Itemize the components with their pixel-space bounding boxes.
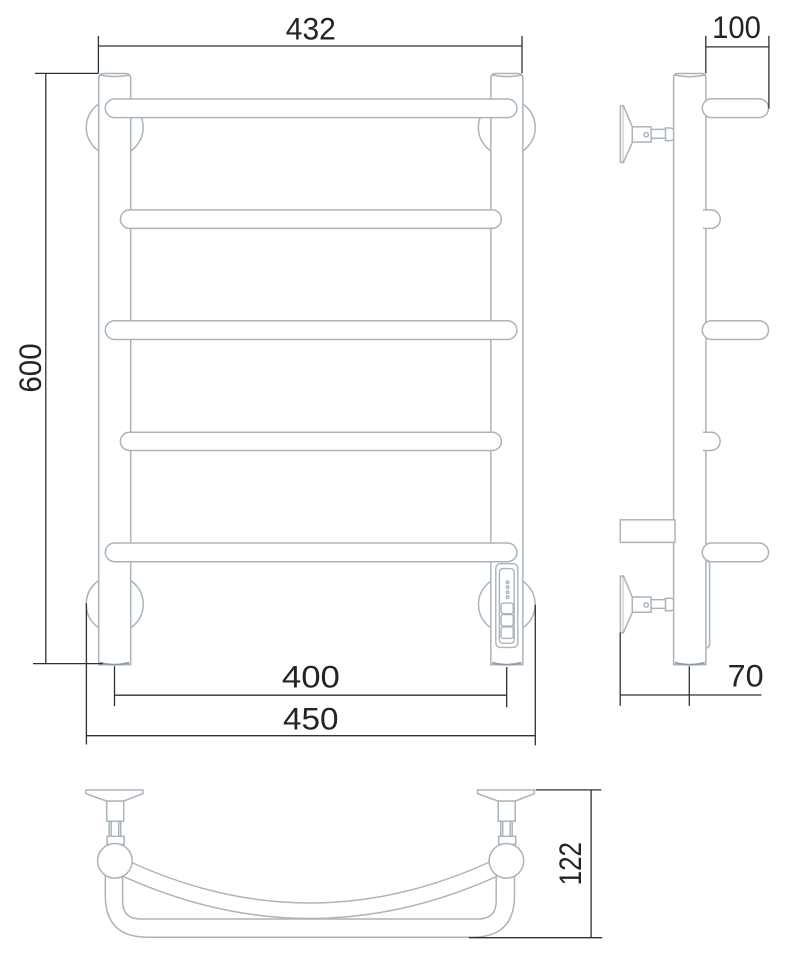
svg-text:400: 400 bbox=[282, 658, 340, 694]
svg-text:70: 70 bbox=[728, 658, 764, 694]
svg-text:432: 432 bbox=[286, 11, 336, 47]
svg-text:122: 122 bbox=[552, 842, 588, 885]
svg-text:600: 600 bbox=[12, 343, 48, 392]
svg-text:450: 450 bbox=[283, 701, 339, 737]
svg-text:100: 100 bbox=[712, 9, 761, 45]
